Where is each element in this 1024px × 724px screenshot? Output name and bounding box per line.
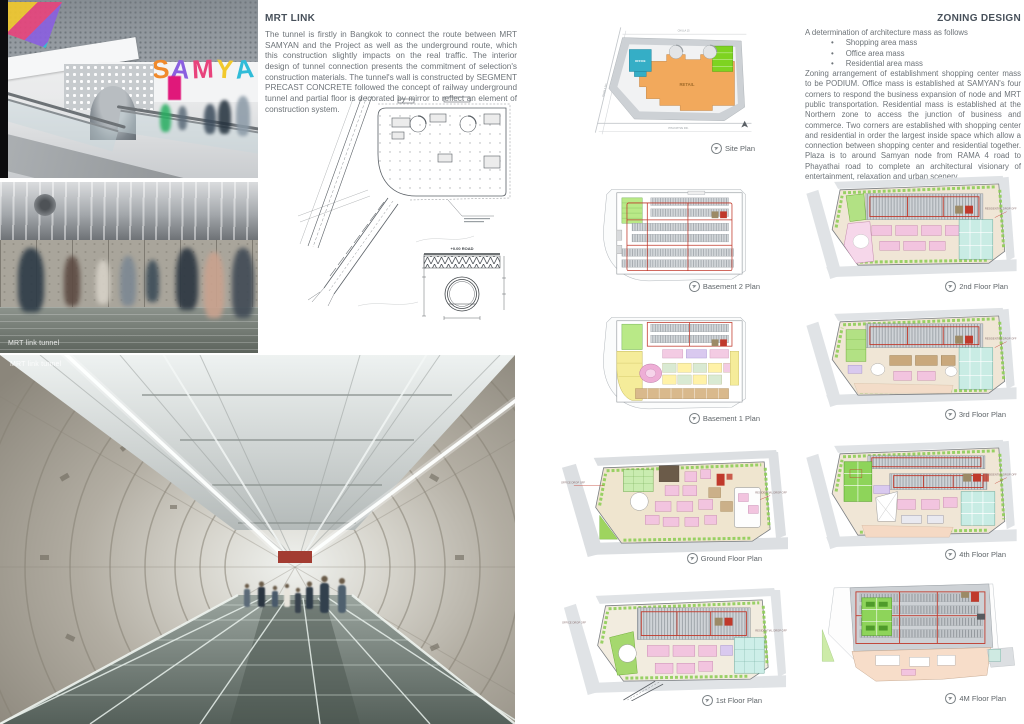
third-floor-drawing: RESIDENTIAL DROP OFF — [804, 300, 1018, 413]
photo-tunnel-people: MRT link tunnel — [0, 182, 258, 353]
tunnel-person — [120, 256, 136, 306]
zoning-intro: A determination of architecture mass as … — [805, 28, 1021, 38]
tunnel-person — [96, 260, 110, 304]
residential-dropoff-label: RESIDENTIAL DROP OFF — [755, 491, 787, 495]
zoning-bullet: Shopping area mass — [831, 38, 1021, 48]
zoning-body: Zoning arrangement of establishment shop… — [805, 69, 1021, 182]
plan-caption-text: 4th Floor Plan — [959, 550, 1006, 559]
retail-label: RETAIL — [679, 82, 694, 87]
residential-dropoff-label: RESIDENTIAL DROP OFF — [985, 337, 1017, 341]
ground-floor-drawing: OFFICE DROP OFF RESIDENTIAL DROP OFF — [560, 444, 788, 561]
plan-caption-text: Basement 2 Plan — [703, 282, 760, 291]
mall-person — [218, 100, 231, 134]
mrt-link-title: MRT LINK — [265, 13, 517, 24]
north-arrow-icon: ➤ — [944, 691, 958, 705]
first-floor-drawing: OFFICE DROP OFF RESIDENTIAL DROP OFF — [560, 580, 788, 701]
fourm-floor-plan: ➤ 4M Floor Plan — [804, 574, 1022, 706]
road-label-top: CHULA 15 — [678, 30, 691, 33]
tunnel-person — [232, 248, 254, 318]
fourth-floor-plan: RESIDENTIAL DROP OFF ➤ 4th Floor Plan — [804, 430, 1022, 562]
residential-dropoff-label: RESIDENTIAL DROP OFF — [985, 473, 1017, 477]
ground-floor-plan: OFFICE DROP OFF RESIDENTIAL DROP OFF ➤ G… — [560, 444, 792, 566]
sign-letter: A — [234, 55, 255, 83]
fourm-floor-drawing — [804, 574, 1018, 701]
north-arrow-icon: ➤ — [700, 693, 714, 707]
residential-dropoff-label: RESIDENTIAL DROP OFF — [755, 629, 787, 633]
photo-label: MRT link tunnel — [10, 361, 61, 368]
north-arrow-icon: ➤ — [944, 547, 958, 561]
sign-letter: M — [192, 55, 215, 82]
basement-1-drawing — [586, 314, 756, 419]
road-label-bottom: PHAYATHAI RD. — [668, 126, 688, 130]
office-dropoff-label: OFFICE DROP OFF — [561, 481, 586, 485]
tunnel-cad-drawing: +0.00 ROAD — [298, 96, 520, 333]
photo-tunnel-large: MRT link tunnel — [0, 355, 515, 724]
tunnel-person — [204, 252, 224, 318]
fourth-floor-drawing: RESIDENTIAL DROP OFF — [804, 430, 1018, 557]
tunnel-large-graphic — [0, 355, 515, 724]
third-floor-plan: RESIDENTIAL DROP OFF ➤ 3rd Floor Plan — [804, 300, 1022, 422]
site-plan-drawing: RETAIL OFFICE CHULA 15 PHAYATHAI RD. RAM… — [585, 24, 755, 136]
photo-label: MRT link tunnel — [8, 340, 59, 347]
zoning-bullet: Residential area mass — [831, 59, 1021, 69]
residential-dropoff-label: RESIDENTIAL DROP OFF — [985, 207, 1017, 211]
mall-pink-banner — [168, 76, 181, 100]
north-arrow-icon: ➤ — [687, 411, 701, 425]
presentation-board: S A M Y A MRT link tunnel — [0, 0, 1024, 724]
tunnel-person — [64, 256, 80, 306]
zoning-text-block: A determination of architecture mass as … — [805, 28, 1021, 182]
plan-caption-text: 2nd Floor Plan — [959, 282, 1008, 291]
basement-2-drawing — [586, 186, 756, 291]
office-label: OFFICE — [635, 59, 646, 63]
photo-mall-escalator: S A M Y A — [8, 0, 258, 178]
north-arrow-icon: ➤ — [687, 279, 701, 293]
section-road-label: +0.00 ROAD — [450, 246, 473, 251]
tunnel-person — [18, 248, 44, 312]
office-dropoff-label: OFFICE DROP OFF — [562, 621, 587, 625]
tunnel-person — [146, 260, 159, 302]
plan-caption-text: Site Plan — [725, 144, 755, 153]
plan-caption-text: Basement 1 Plan — [703, 414, 760, 423]
zoning-bullet-list: Shopping area mass Office area mass Resi… — [805, 38, 1021, 69]
mall-person — [160, 104, 171, 132]
plan-caption-text: Ground Floor Plan — [701, 554, 762, 563]
tunnel-person — [176, 248, 198, 310]
basement-1-plan: ➤ Basement 1 Plan — [586, 314, 762, 424]
road-label-left: RAMA 4 RD. — [602, 82, 608, 97]
north-arrow-icon: ➤ — [709, 141, 723, 155]
photo-edge-bar — [0, 0, 8, 178]
second-floor-plan: RESIDENTIAL DROP OFF ➤ 2nd Floor Plan — [804, 168, 1022, 294]
plan-caption-text: 3rd Floor Plan — [959, 410, 1006, 419]
plan-caption-text: 4M Floor Plan — [959, 694, 1006, 703]
zoning-bullet: Office area mass — [831, 49, 1021, 59]
site-plan: RETAIL OFFICE CHULA 15 PHAYATHAI RD. RAM… — [585, 24, 757, 156]
mall-person — [236, 96, 250, 136]
mall-person — [178, 106, 187, 130]
zoning-title: ZONING DESIGN — [805, 13, 1021, 24]
north-arrow-icon: ➤ — [944, 279, 958, 293]
north-arrow-icon: ➤ — [685, 551, 699, 565]
plan-caption-text: 1st Floor Plan — [716, 696, 762, 705]
first-floor-plan: OFFICE DROP OFF RESIDENTIAL DROP OFF ➤ 1… — [560, 580, 792, 708]
tunnel-vent — [34, 194, 56, 216]
mall-person — [204, 104, 216, 134]
basement-2-plan: ➤ Basement 2 Plan — [586, 186, 762, 292]
second-floor-drawing: RESIDENTIAL DROP OFF — [804, 168, 1018, 285]
sign-letter: Y — [215, 55, 234, 82]
north-arrow-icon: ➤ — [943, 407, 957, 421]
